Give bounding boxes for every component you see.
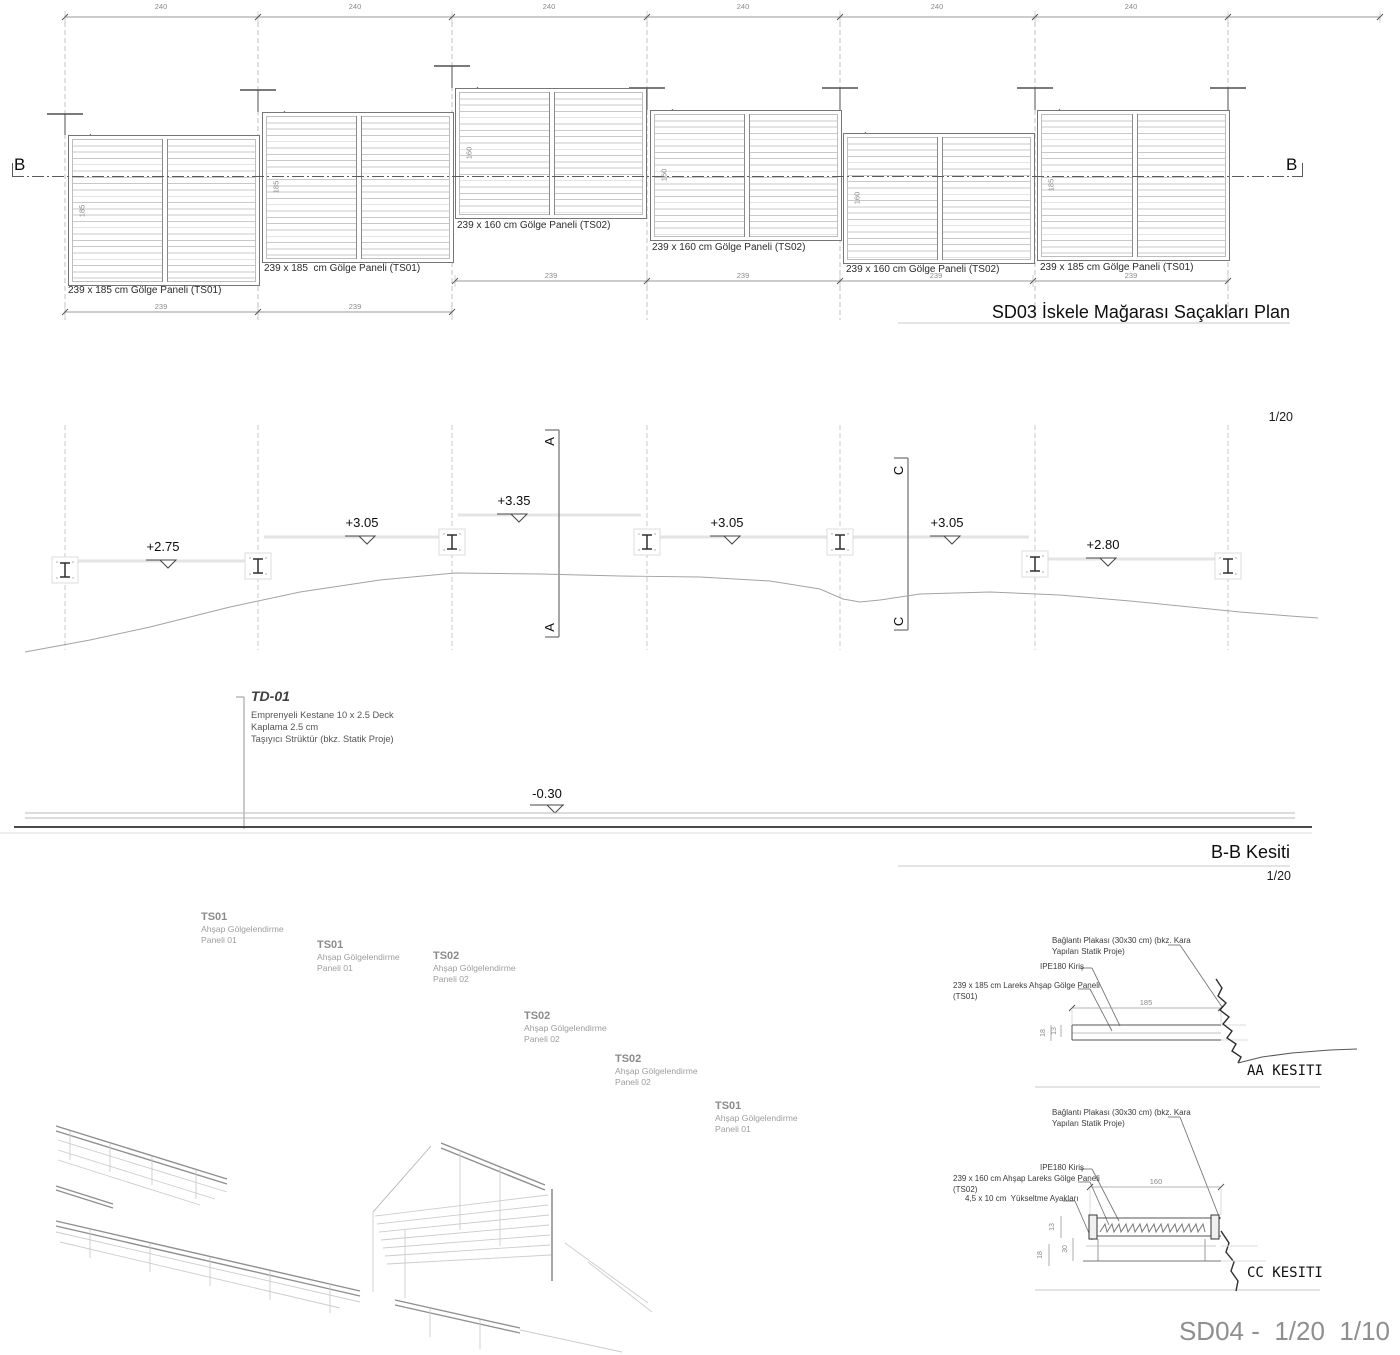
cc-beam-dim: 18 [1037,1251,1045,1259]
plan-dim-240: 240 [1125,3,1138,12]
section-marker-b-left: B [14,155,25,175]
panel-label: 239 x 160 cm Gölge Paneli (TS02) [846,264,999,276]
panel-depth-dim: 160 [661,169,670,182]
aa-width-dim: 185 [1140,999,1153,1008]
section-columns [52,529,1241,583]
axon-label-line: Paneli 01 [715,1125,751,1135]
detail-cc-drawing [1049,1117,1266,1291]
cut-letter-a-bottom: A [543,623,558,632]
column-symbol [634,529,660,555]
column-symbol [245,553,271,579]
axon-label-code: TS02 [615,1053,641,1066]
cc-riser-dim: 30 [1062,1245,1070,1253]
panel-width-dim: 239 [737,272,750,281]
aa-plate-note: Bağlantı Plakası (30x30 cm) (bkz. Kara [1052,936,1191,945]
plan-panel-ts02-3 [843,133,1035,264]
panel-depth-dim: 185 [79,205,88,218]
panel-center-divider [744,114,750,237]
plan-panel-ts01-1 [68,135,260,286]
plan-panel-ts02-2 [650,110,842,241]
axon-label-line: Paneli 02 [433,975,469,985]
aa-total-dim: 18 [1040,1029,1048,1037]
td01-note-line: Taşıyıcı Strüktür (bkz. Statik Proje) [251,734,394,745]
plan-title: SD03 İskele Mağarası Saçakları Plan [890,302,1290,323]
panel-width-dim: 239 [349,303,362,312]
td01-code: TD-01 [251,688,290,704]
aa-panel-dim: 13 [1051,1027,1059,1035]
cc-plate-note: Yapıları Statik Proje) [1052,1119,1125,1128]
plan-panel-ts01-3 [1037,110,1230,261]
axon-label-code: TS01 [317,939,343,952]
plan-scale-label: 1/20 [1200,410,1293,424]
cc-beam-note: IPE180 Kiriş [1040,1163,1084,1172]
aa-beam-note: IPE180 Kiriş [1040,962,1084,971]
elevation-label: +3.35 [498,494,531,509]
panel-center-divider [937,137,943,260]
axon-label-line: Paneli 01 [201,936,237,946]
plan-panel-ts02-1 [455,88,647,219]
elevation-label: +3.05 [931,516,964,531]
elevation-label: +3.05 [346,516,379,531]
panel-center-divider [1132,114,1138,257]
column-symbol [52,557,78,583]
cc-panel-note: (TS02) [953,1185,977,1194]
cut-letter-c-top: C [892,466,907,475]
panel-width-dim: 239 [1125,272,1138,281]
terrain-line [25,573,1318,652]
plan-dim-240: 240 [931,3,944,12]
td01-note-line: Emprenyeli Kestane 10 x 2.5 Deck [251,710,394,721]
column-symbol [1215,553,1241,579]
deck-elevation-label: -0.30 [532,787,562,802]
elevation-label: +2.75 [147,540,180,555]
drawing-sheet: 240 240 240 240 240 240 B B 239 x 185 cm… [0,0,1400,1355]
panel-label: 239 x 185 cm Gölge Paneli (TS01) [264,263,420,275]
panel-depth-dim: 160 [854,192,863,205]
detail-aa-drawing [1051,945,1357,1063]
elevation-markers [146,514,1116,813]
panel-center-divider [356,116,362,259]
cc-width-dim: 160 [1150,1178,1163,1187]
panel-width-dim: 239 [155,303,168,312]
panel-label: 239 x 185 cm Gölge Paneli (TS01) [68,285,221,297]
axon-label-code: TS01 [201,911,227,924]
plan-dim-240: 240 [155,3,168,12]
panel-center-divider [549,92,555,215]
panel-width-dim: 239 [545,272,558,281]
plan-dim-240: 240 [543,3,556,12]
cut-letter-a-top: A [543,437,558,446]
cut-letter-c-bottom: C [892,617,907,626]
deck-lines [0,813,1312,833]
column-symbol [1022,551,1048,577]
cc-panel-dim: 13 [1049,1223,1057,1231]
panel-label: 239 x 185 cm Gölge Paneli (TS01) [1040,262,1193,274]
aa-plate-note: Yapıları Statik Proje) [1052,947,1125,956]
plan-dim-240: 240 [349,3,362,12]
cc-plate-note: Bağlantı Plakası (30x30 cm) (bkz. Kara [1052,1108,1191,1117]
column-symbol [439,529,465,555]
cc-panel-note: 239 x 160 cm Ahşap Lareks Gölge Paneli [953,1174,1100,1183]
aa-section-title: AA KESITI [1247,1063,1323,1079]
td01-leader-line [236,697,244,829]
axon-label-line: Ahşap Gölgelendirme [715,1114,798,1124]
axon-label-line: Paneli 02 [524,1035,560,1045]
axon-label-line: Ahşap Gölgelendirme [201,925,284,935]
panel-label: 239 x 160 cm Gölge Paneli (TS02) [652,242,805,254]
cc-section-title: CC KESITI [1247,1265,1323,1281]
td01-note-line: Kaplama 2.5 cm [251,722,318,733]
axon-label-line: Paneli 01 [317,964,353,974]
axon-label-line: Ahşap Gölgelendirme [524,1024,607,1034]
panel-center-divider [162,139,168,282]
title-underlines [898,323,1320,1290]
axon-label-code: TS01 [715,1100,741,1113]
panel-depth-dim: 185 [1048,179,1057,192]
sheet-number-footer: SD04 - 1/20 1/10 [998,1317,1390,1347]
axon-label-code: TS02 [433,950,459,963]
panel-depth-dim: 185 [273,181,282,194]
section-scale-label: 1/20 [1198,869,1291,883]
aa-panel-note: 239 x 185 cm Lareks Ahşap Gölge Paneli [953,981,1100,990]
panel-width-dim: 239 [930,272,943,281]
axon-label-line: Paneli 02 [615,1078,651,1088]
elevation-label: +2.80 [1087,538,1120,553]
section-marker-b-right: B [1286,155,1297,175]
aa-panel-note: (TS01) [953,992,977,1001]
section-title: B-B Kesiti [890,842,1290,863]
column-symbol [827,529,853,555]
plan-top-dimension-line [62,11,1383,23]
plan-dim-240: 240 [737,3,750,12]
plan-panel-ts01-2 [262,112,454,263]
panel-depth-dim: 160 [466,147,475,160]
axonometric-wireframe [56,1126,652,1352]
axon-label-line: Ahşap Gölgelendirme [615,1067,698,1077]
cc-riser-note: 4,5 x 10 cm Yükseltme Ayakları [965,1194,1079,1203]
axon-label-code: TS02 [524,1010,550,1023]
elevation-label: +3.05 [711,516,744,531]
panel-label: 239 x 160 cm Gölge Paneli (TS02) [457,220,610,232]
axon-label-line: Ahşap Gölgelendirme [433,964,516,974]
axon-label-line: Ahşap Gölgelendirme [317,953,400,963]
section-cut-lines [545,430,908,637]
